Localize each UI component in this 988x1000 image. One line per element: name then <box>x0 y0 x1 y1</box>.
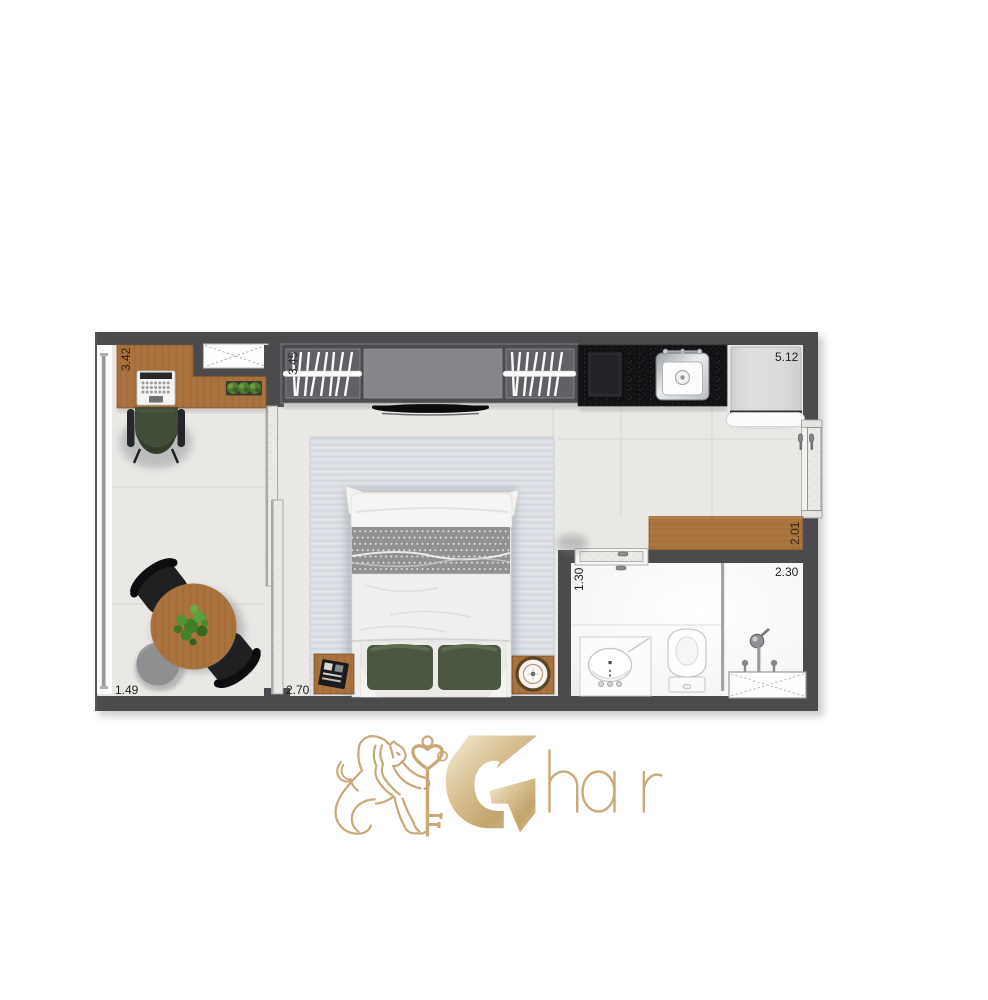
svg-text:3.45: 3.45 <box>286 351 300 375</box>
svg-text:1.49: 1.49 <box>115 683 139 697</box>
svg-text:2.30: 2.30 <box>775 565 799 579</box>
svg-text:3.42: 3.42 <box>119 347 133 371</box>
svg-text:2.01: 2.01 <box>788 521 802 545</box>
svg-text:5.12: 5.12 <box>775 350 799 364</box>
svg-text:2.70: 2.70 <box>286 683 310 697</box>
svg-text:1.30: 1.30 <box>572 567 586 591</box>
